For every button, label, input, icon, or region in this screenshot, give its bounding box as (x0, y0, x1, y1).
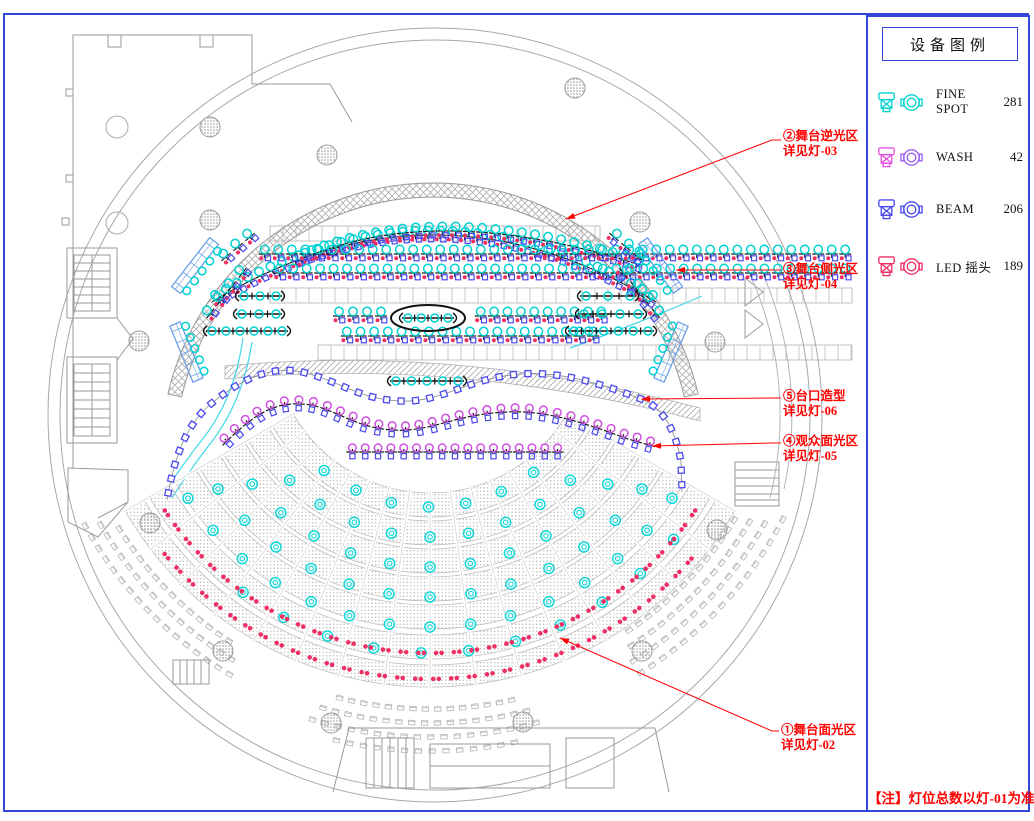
fixture-front-icon (875, 91, 898, 114)
stair-lower-left (173, 660, 209, 684)
legend-item-count: 206 (1004, 201, 1026, 217)
legend-item-fine-spot: FINE SPOT281 (875, 87, 1025, 117)
cad-lighting-plan-sheet: { "legend": { "title": "设备图例", "note": "… (0, 0, 1034, 821)
legend-item-name: WASH (936, 150, 973, 165)
wall-tick (66, 175, 73, 182)
legend-item-name: FINE SPOT (936, 87, 1001, 117)
legend-item-name: BEAM (936, 202, 974, 217)
wall-tick (66, 89, 73, 96)
legend-note: 【注】灯位总数以灯-01为准 (868, 787, 1028, 807)
fixture-top-icon (900, 198, 923, 221)
legend-item-icons (875, 198, 927, 221)
legend-item-count: 42 (1010, 149, 1025, 165)
wall-bays-right (745, 278, 763, 338)
legend-item-count: 281 (1004, 94, 1026, 110)
fixture-top-icon (900, 91, 923, 114)
legend-item-beam: BEAM206 (875, 194, 1025, 224)
fixture-front-icon (875, 198, 898, 221)
legend-item-name: LED 摇头 (936, 257, 991, 276)
column-mark (200, 35, 213, 47)
fixture-top-icon (900, 146, 923, 169)
fixture-top-icon (900, 255, 923, 278)
legend-item-icons (875, 91, 927, 114)
bottom-rooms (333, 728, 669, 792)
wall-tick (62, 218, 69, 225)
legend-item-led-摇头: LED 摇头189 (875, 251, 1025, 281)
column-mark (108, 35, 121, 47)
fixture-front-icon (875, 255, 898, 278)
legend-item-count: 189 (1004, 258, 1026, 274)
fixture-front-icon (875, 146, 898, 169)
legend-item-icons (875, 255, 927, 278)
stair-right (735, 462, 779, 506)
legend-item-icons (875, 146, 927, 169)
stairwell-lower-left (67, 357, 117, 443)
legend-panel: 设备图例 FINE SPOT281WASH42BEAM206LED 摇头189 … (866, 15, 1030, 812)
legend-item-wash: WASH42 (875, 142, 1025, 172)
stairwell-upper-left (67, 248, 117, 318)
legend-title-box: 设备图例 (882, 27, 1018, 61)
legend-title: 设备图例 (910, 34, 990, 55)
